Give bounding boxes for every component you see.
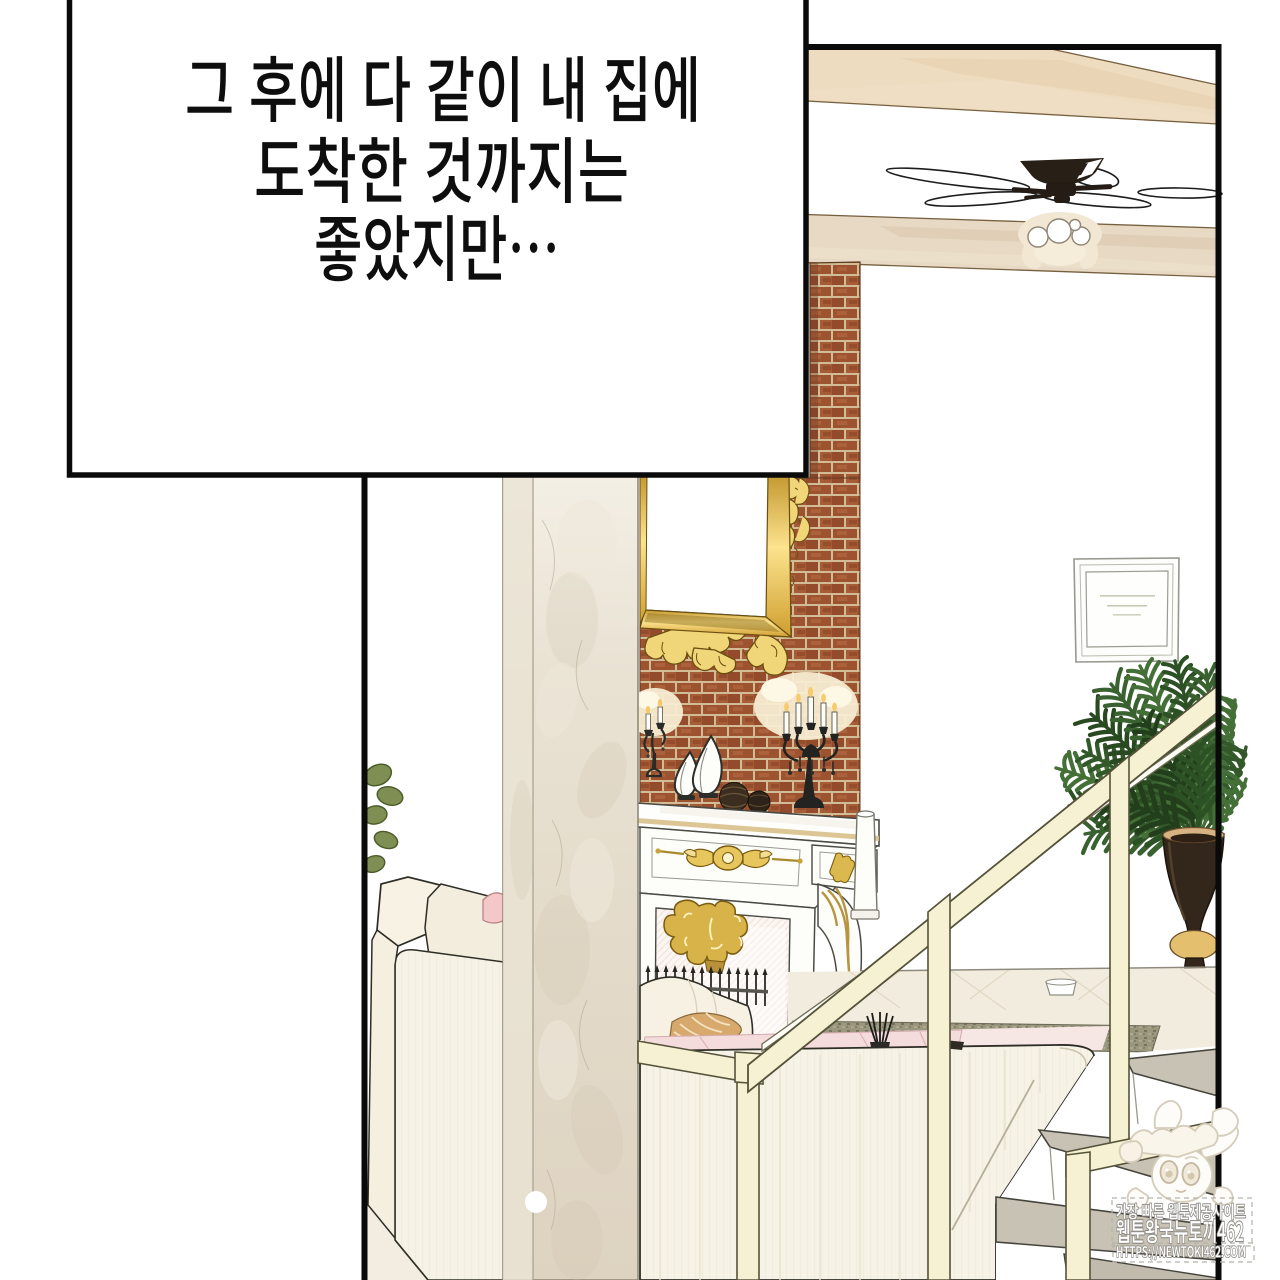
svg-text:좋았지만…: 좋았지만…: [314, 191, 560, 296]
svg-text:HTTPS://NEWTOKI462.COM: HTTPS://NEWTOKI462.COM: [1116, 1241, 1246, 1262]
